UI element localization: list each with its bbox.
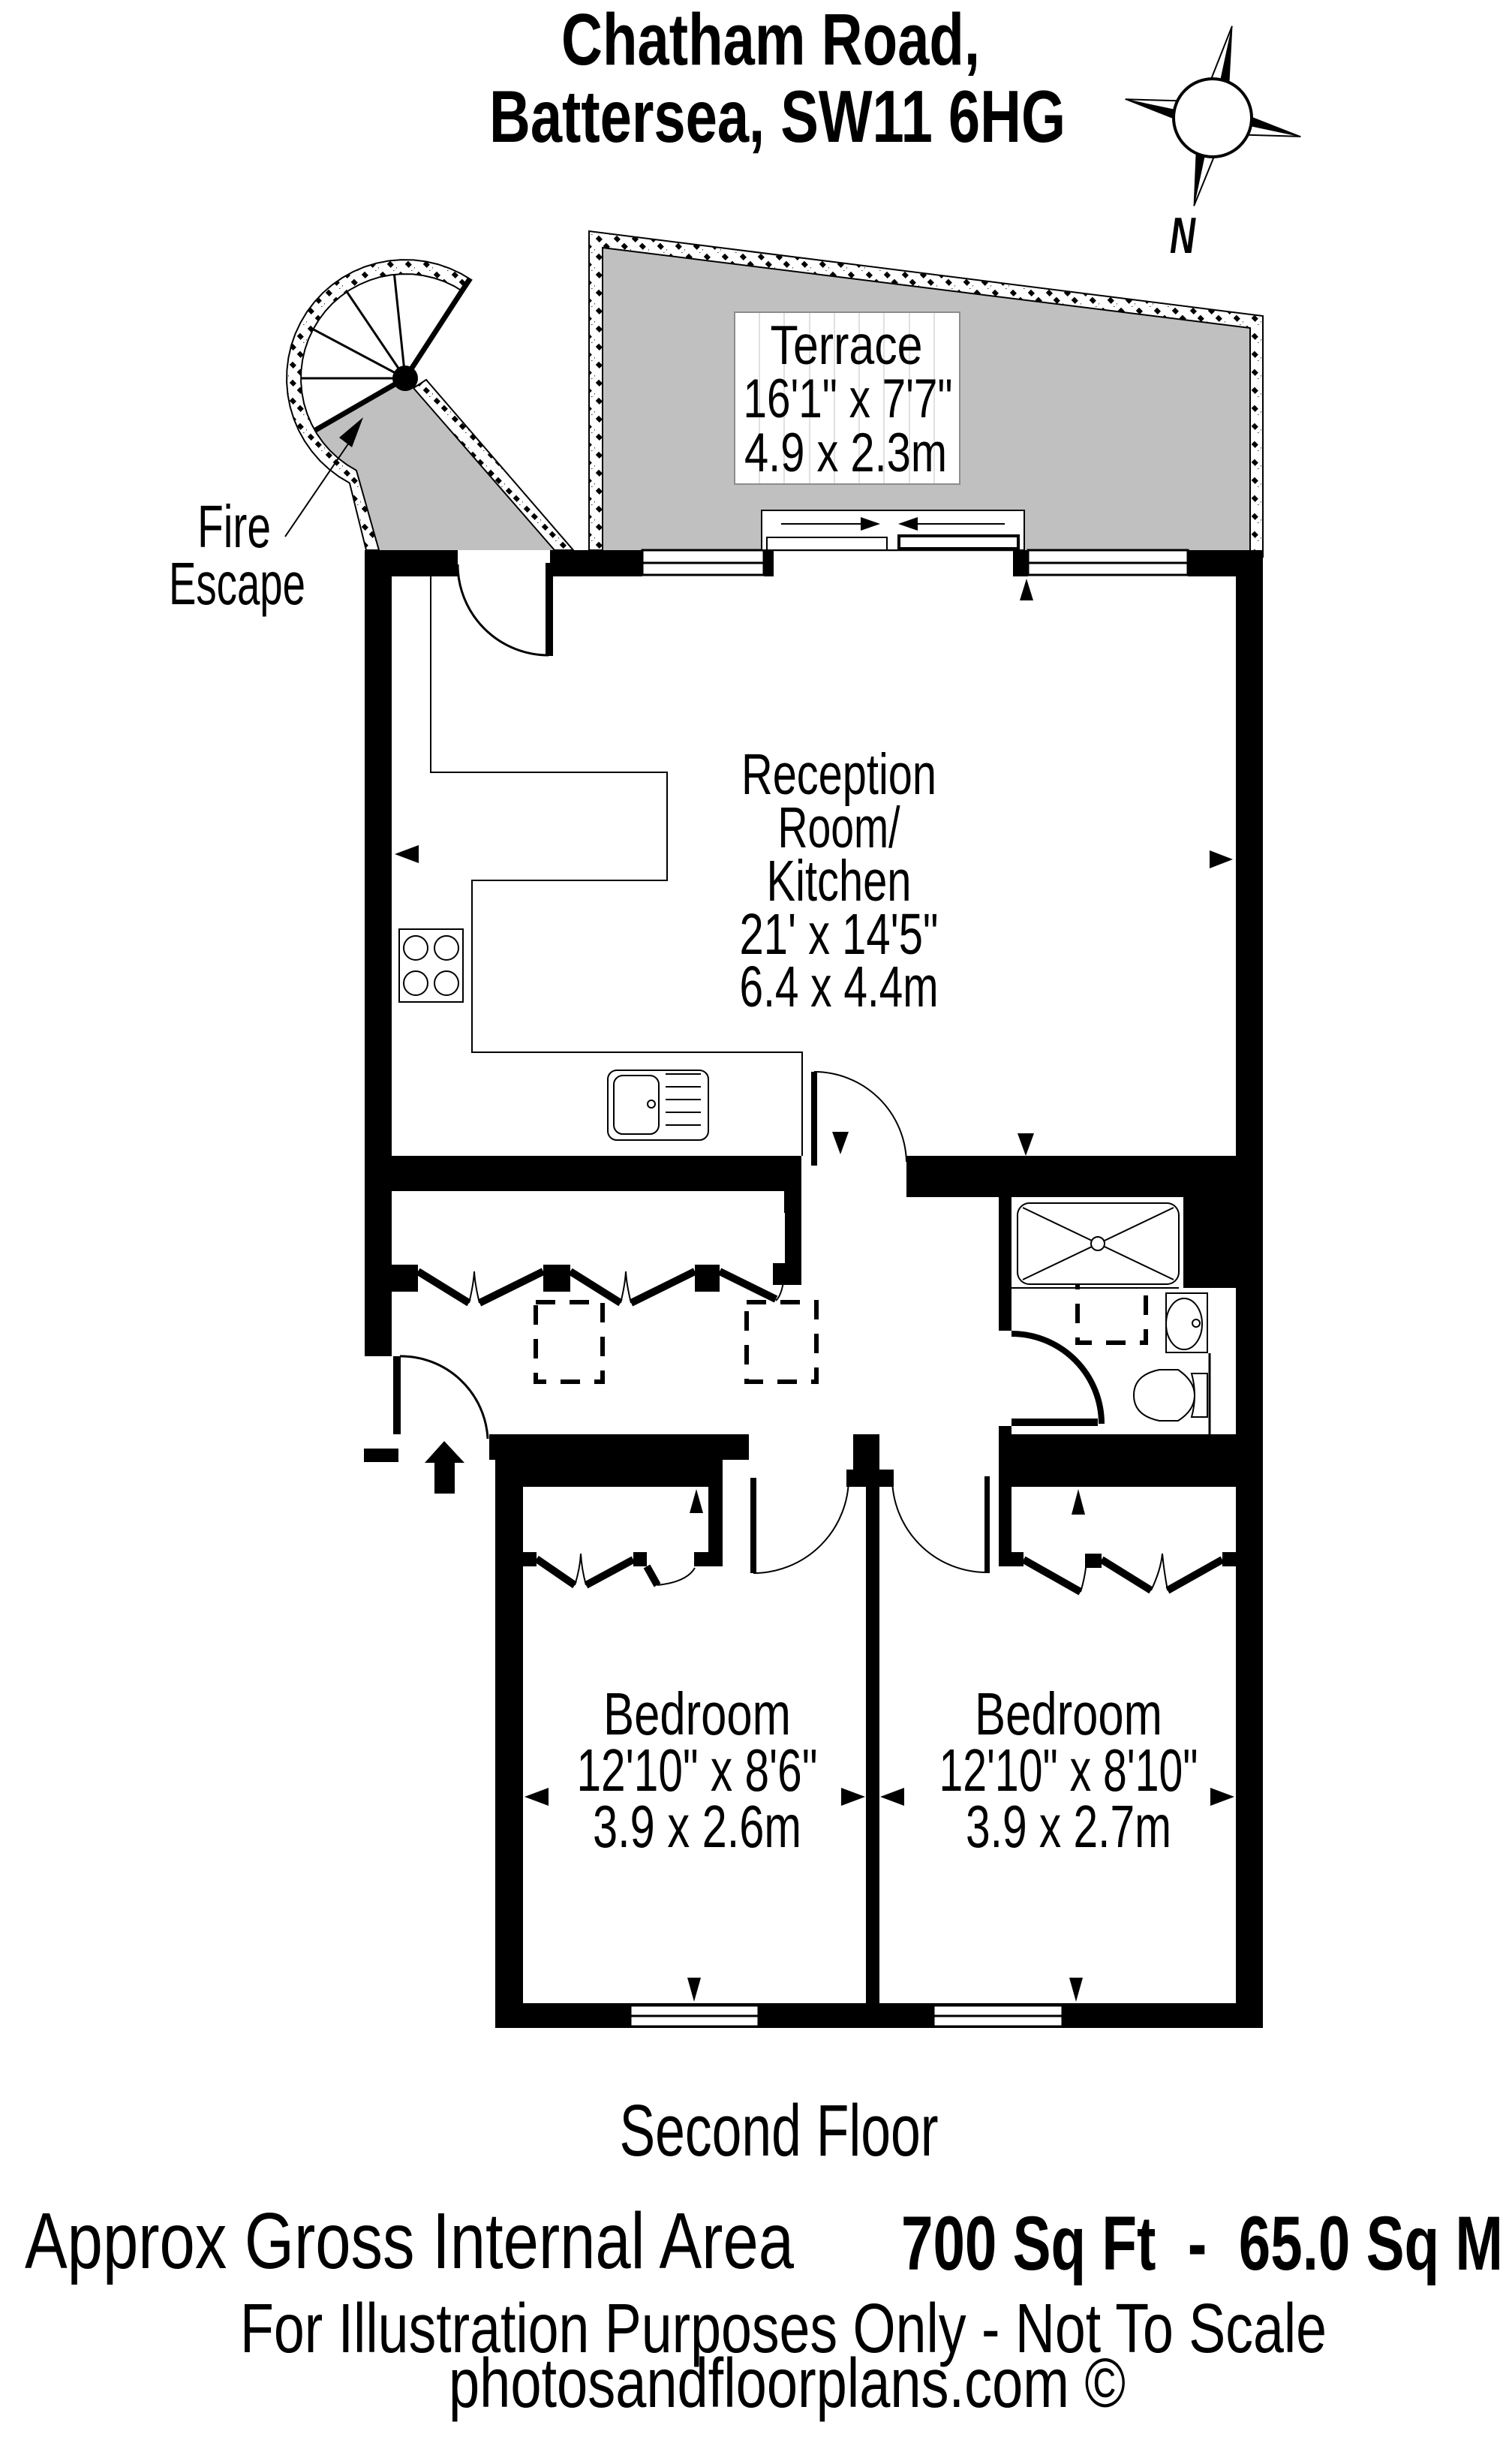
svg-text:Chatham Road,: Chatham Road,	[561, 0, 980, 80]
svg-text:3.9 x 2.7m: 3.9 x 2.7m	[966, 1793, 1171, 1860]
svg-text:Second Floor: Second Floor	[620, 2089, 939, 2171]
svg-text:3.9 x 2.6m: 3.9 x 2.6m	[593, 1793, 801, 1860]
svg-text:16'1" x 7'7": 16'1" x 7'7"	[744, 369, 953, 429]
svg-text:N: N	[1170, 207, 1196, 264]
svg-text:4.9 x 2.3m: 4.9 x 2.3m	[744, 423, 947, 483]
svg-text:6.4 x 4.4m: 6.4 x 4.4m	[740, 955, 939, 1019]
svg-text:photosandfloorplans.com ©: photosandfloorplans.com ©	[449, 2344, 1126, 2422]
svg-text:Battersea, SW11 6HG: Battersea, SW11 6HG	[489, 75, 1066, 158]
svg-text:700 Sq Ft - 65.0 Sq M: 700 Sq Ft - 65.0 Sq M	[901, 2201, 1503, 2286]
svg-text:Escape: Escape	[169, 550, 305, 617]
svg-text:Approx Gross Internal Area: Approx Gross Internal Area	[25, 2197, 794, 2285]
svg-text:Terrace: Terrace	[771, 315, 923, 376]
